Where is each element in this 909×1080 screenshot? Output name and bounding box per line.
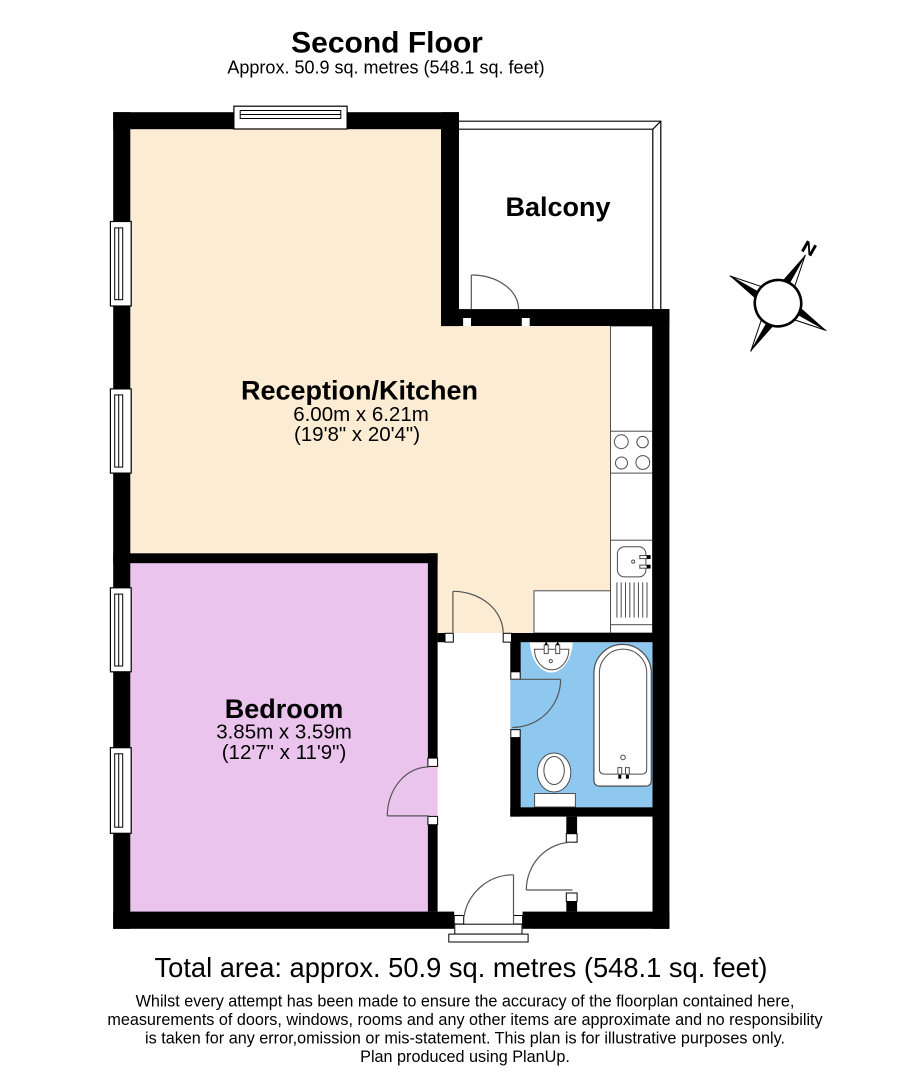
- svg-text:(12'7" x 11'9"): (12'7" x 11'9"): [222, 741, 347, 764]
- svg-text:Plan produced using PlanUp.: Plan produced using PlanUp.: [360, 1048, 570, 1066]
- svg-text:Total area: approx. 50.9 sq. m: Total area: approx. 50.9 sq. metres (548…: [155, 952, 768, 983]
- svg-text:Whilst every attempt has been: Whilst every attempt has been made to en…: [136, 993, 795, 1011]
- svg-text:Second Floor: Second Floor: [291, 26, 483, 59]
- svg-text:Bedroom: Bedroom: [225, 694, 344, 724]
- svg-text:Balcony: Balcony: [505, 192, 610, 222]
- svg-text:is taken for any error,omissio: is taken for any error,omission or mis-s…: [145, 1030, 785, 1048]
- svg-text:Reception/Kitchen: Reception/Kitchen: [241, 375, 478, 405]
- svg-text:(19'8" x 20'4"): (19'8" x 20'4"): [294, 423, 420, 446]
- svg-text:measurements of doors, windows: measurements of doors, windows, rooms an…: [107, 1011, 823, 1029]
- svg-text:Approx. 50.9 sq. metres (548.1: Approx. 50.9 sq. metres (548.1 sq. feet): [227, 58, 544, 78]
